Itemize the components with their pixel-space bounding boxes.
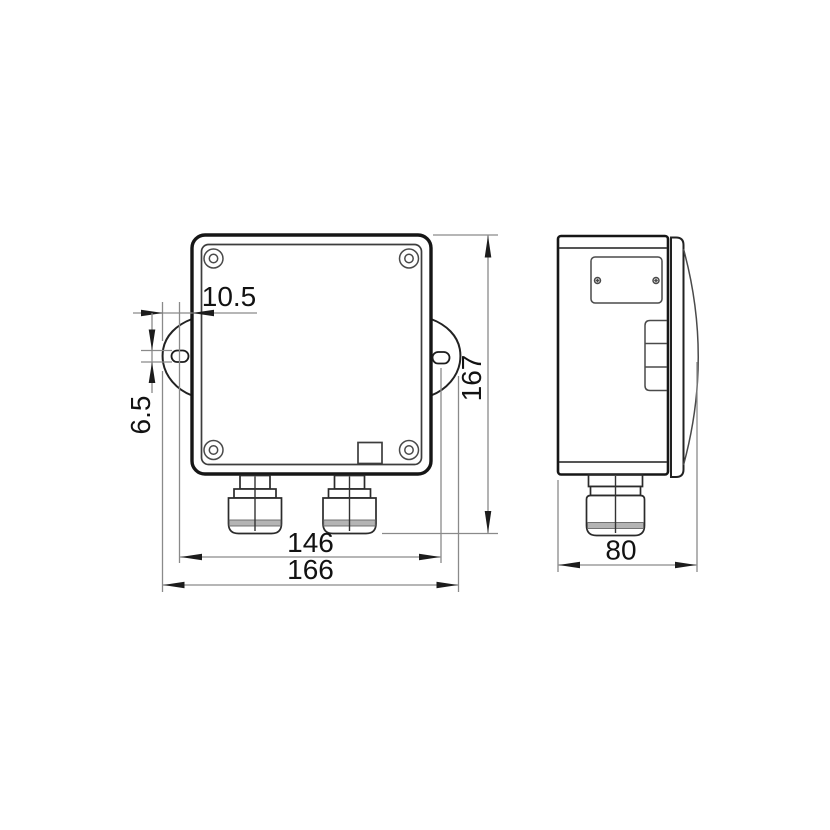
mount-slot-right [433, 352, 450, 364]
dim-arrow [559, 562, 581, 568]
dim-80: 80 [558, 535, 697, 569]
dim-label-tab-offset: 10.5 [202, 281, 257, 312]
side-view [558, 236, 698, 536]
cable-gland-front-right [323, 476, 376, 534]
front-view [163, 235, 461, 534]
dim-167: 167 [456, 235, 491, 534]
dim-arrow [419, 554, 441, 560]
technical-drawing-page: 10.5 6.5 167 146 [0, 0, 830, 830]
dim-label-overall-height: 167 [456, 355, 487, 402]
enclosure-dimension-drawing: 10.5 6.5 167 146 [0, 0, 830, 830]
dim-label-depth: 80 [605, 535, 636, 566]
lid-dome-arc [684, 249, 699, 465]
lid-strip [671, 238, 684, 478]
dim-arrow [437, 582, 459, 588]
cable-gland-front-left [229, 476, 282, 534]
dim-arrow [163, 582, 185, 588]
dim-166: 166 [163, 554, 459, 588]
dim-arrow [485, 236, 492, 258]
dim-arrow [181, 554, 203, 560]
dim-label-slot-height: 6.5 [125, 396, 156, 435]
cable-gland-side [587, 475, 645, 536]
front-box-outer [192, 235, 431, 474]
side-body [558, 236, 668, 475]
dim-arrow [149, 330, 156, 351]
dim-label-overall-width: 166 [287, 554, 334, 585]
dim-arrow [149, 362, 156, 383]
dim-6-5: 6.5 [125, 313, 172, 434]
dim-arrow [485, 511, 492, 533]
dim-arrow [675, 562, 697, 568]
